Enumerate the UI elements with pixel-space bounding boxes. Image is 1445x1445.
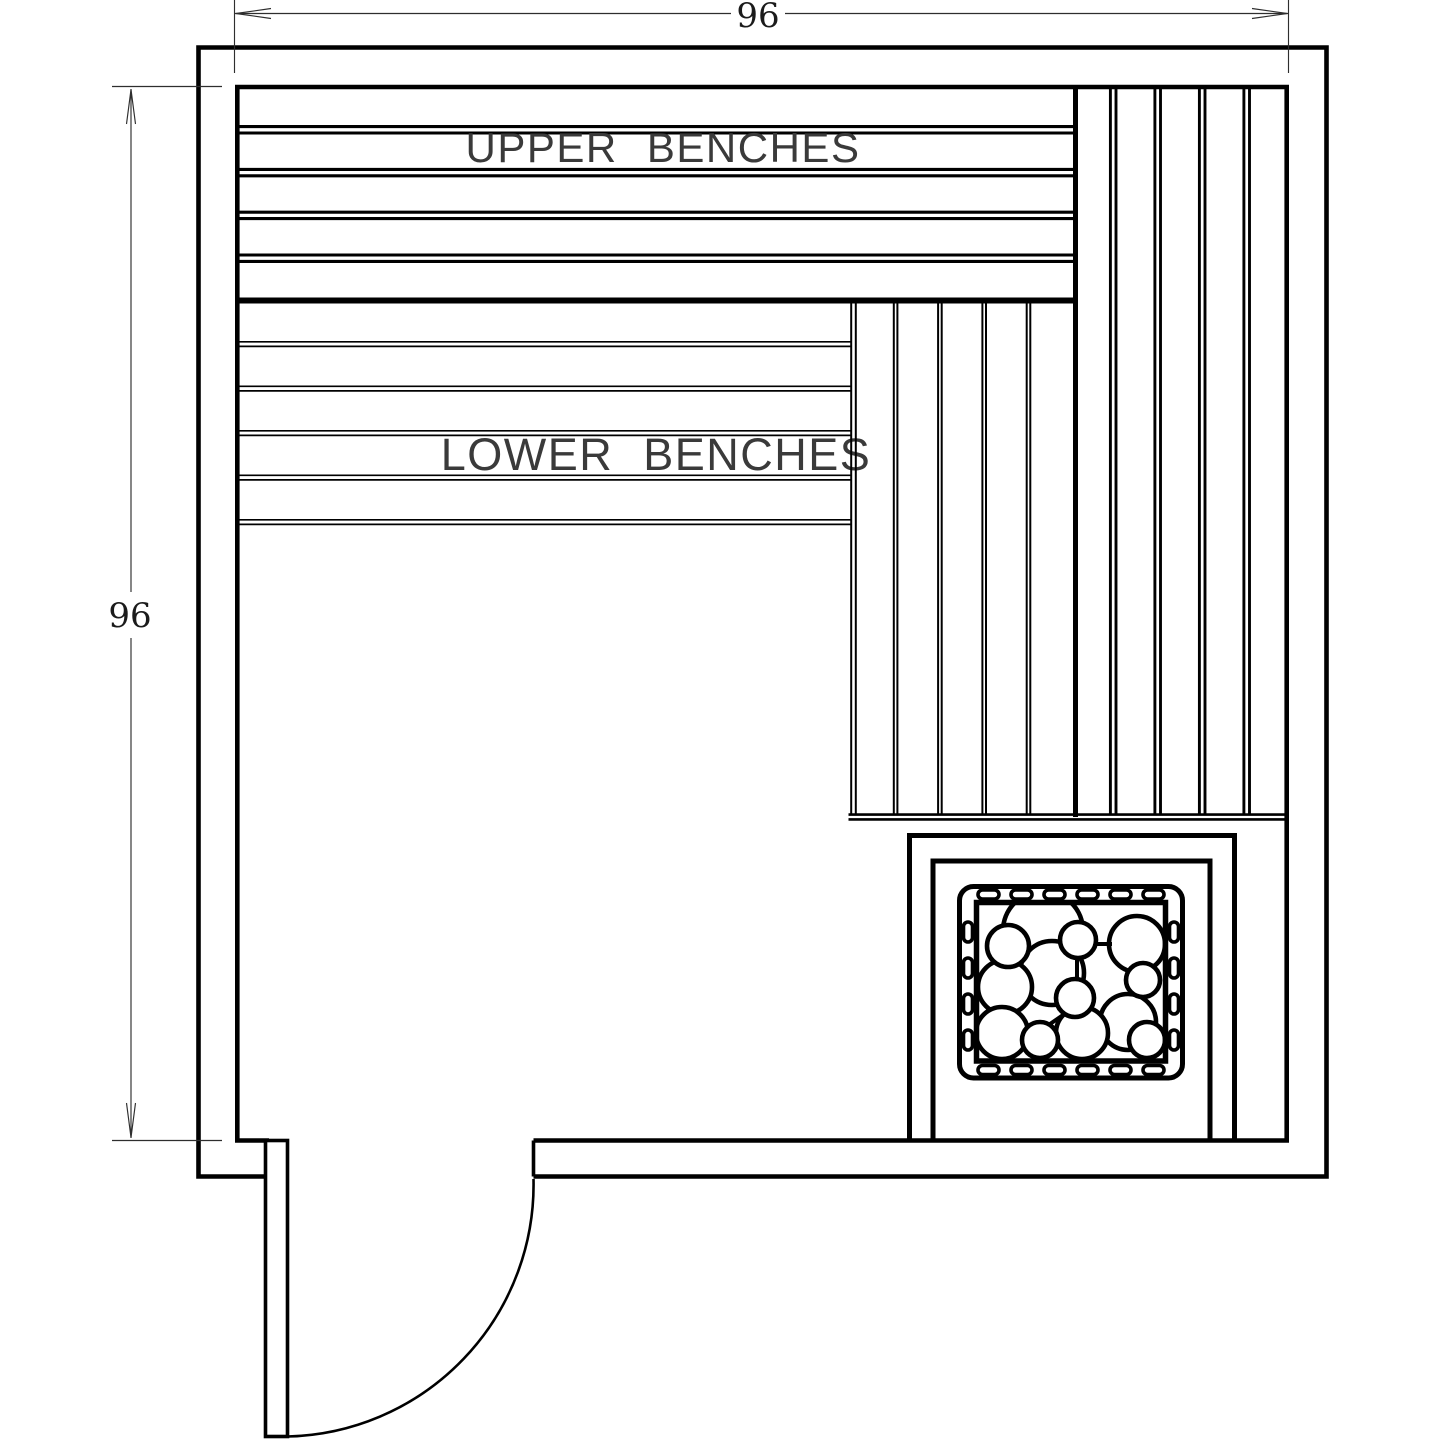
side-bench-middle: [851, 301, 1030, 816]
upper-bench: UPPER BENCHES: [237, 124, 1075, 301]
heater-rock: [1022, 1022, 1058, 1058]
heater-rock: [976, 1007, 1028, 1059]
door: [266, 1141, 534, 1437]
heater-rock: [1126, 963, 1160, 997]
floor-plan-canvas: UPPER BENCHES LOWER BENCHES: [0, 0, 1445, 1445]
door-leaf: [266, 1141, 288, 1437]
dimension-top: 96: [235, 0, 1289, 73]
heater: [910, 836, 1235, 1141]
dimension-left-value: 96: [108, 596, 151, 636]
lower-bench-label: LOWER BENCHES: [441, 429, 872, 480]
bench-front-edge: [849, 815, 1287, 820]
heater-rock: [1060, 922, 1096, 958]
sauna-floor-plan: UPPER BENCHES LOWER BENCHES: [0, 0, 1445, 1445]
heater-rock: [1056, 979, 1094, 1017]
heater-rock: [987, 925, 1029, 967]
side-bench-right-slats: [1110, 87, 1249, 815]
side-bench-right: [1076, 87, 1250, 817]
heater-rocks: [976, 891, 1165, 1059]
heater-rock: [1129, 1022, 1165, 1058]
lower-bench: LOWER BENCHES: [237, 342, 871, 525]
upper-bench-label: UPPER BENCHES: [466, 124, 861, 171]
dimension-top-value: 96: [736, 0, 779, 36]
door-swing-arc: [288, 1179, 534, 1437]
dimension-left: 96: [108, 87, 222, 1141]
